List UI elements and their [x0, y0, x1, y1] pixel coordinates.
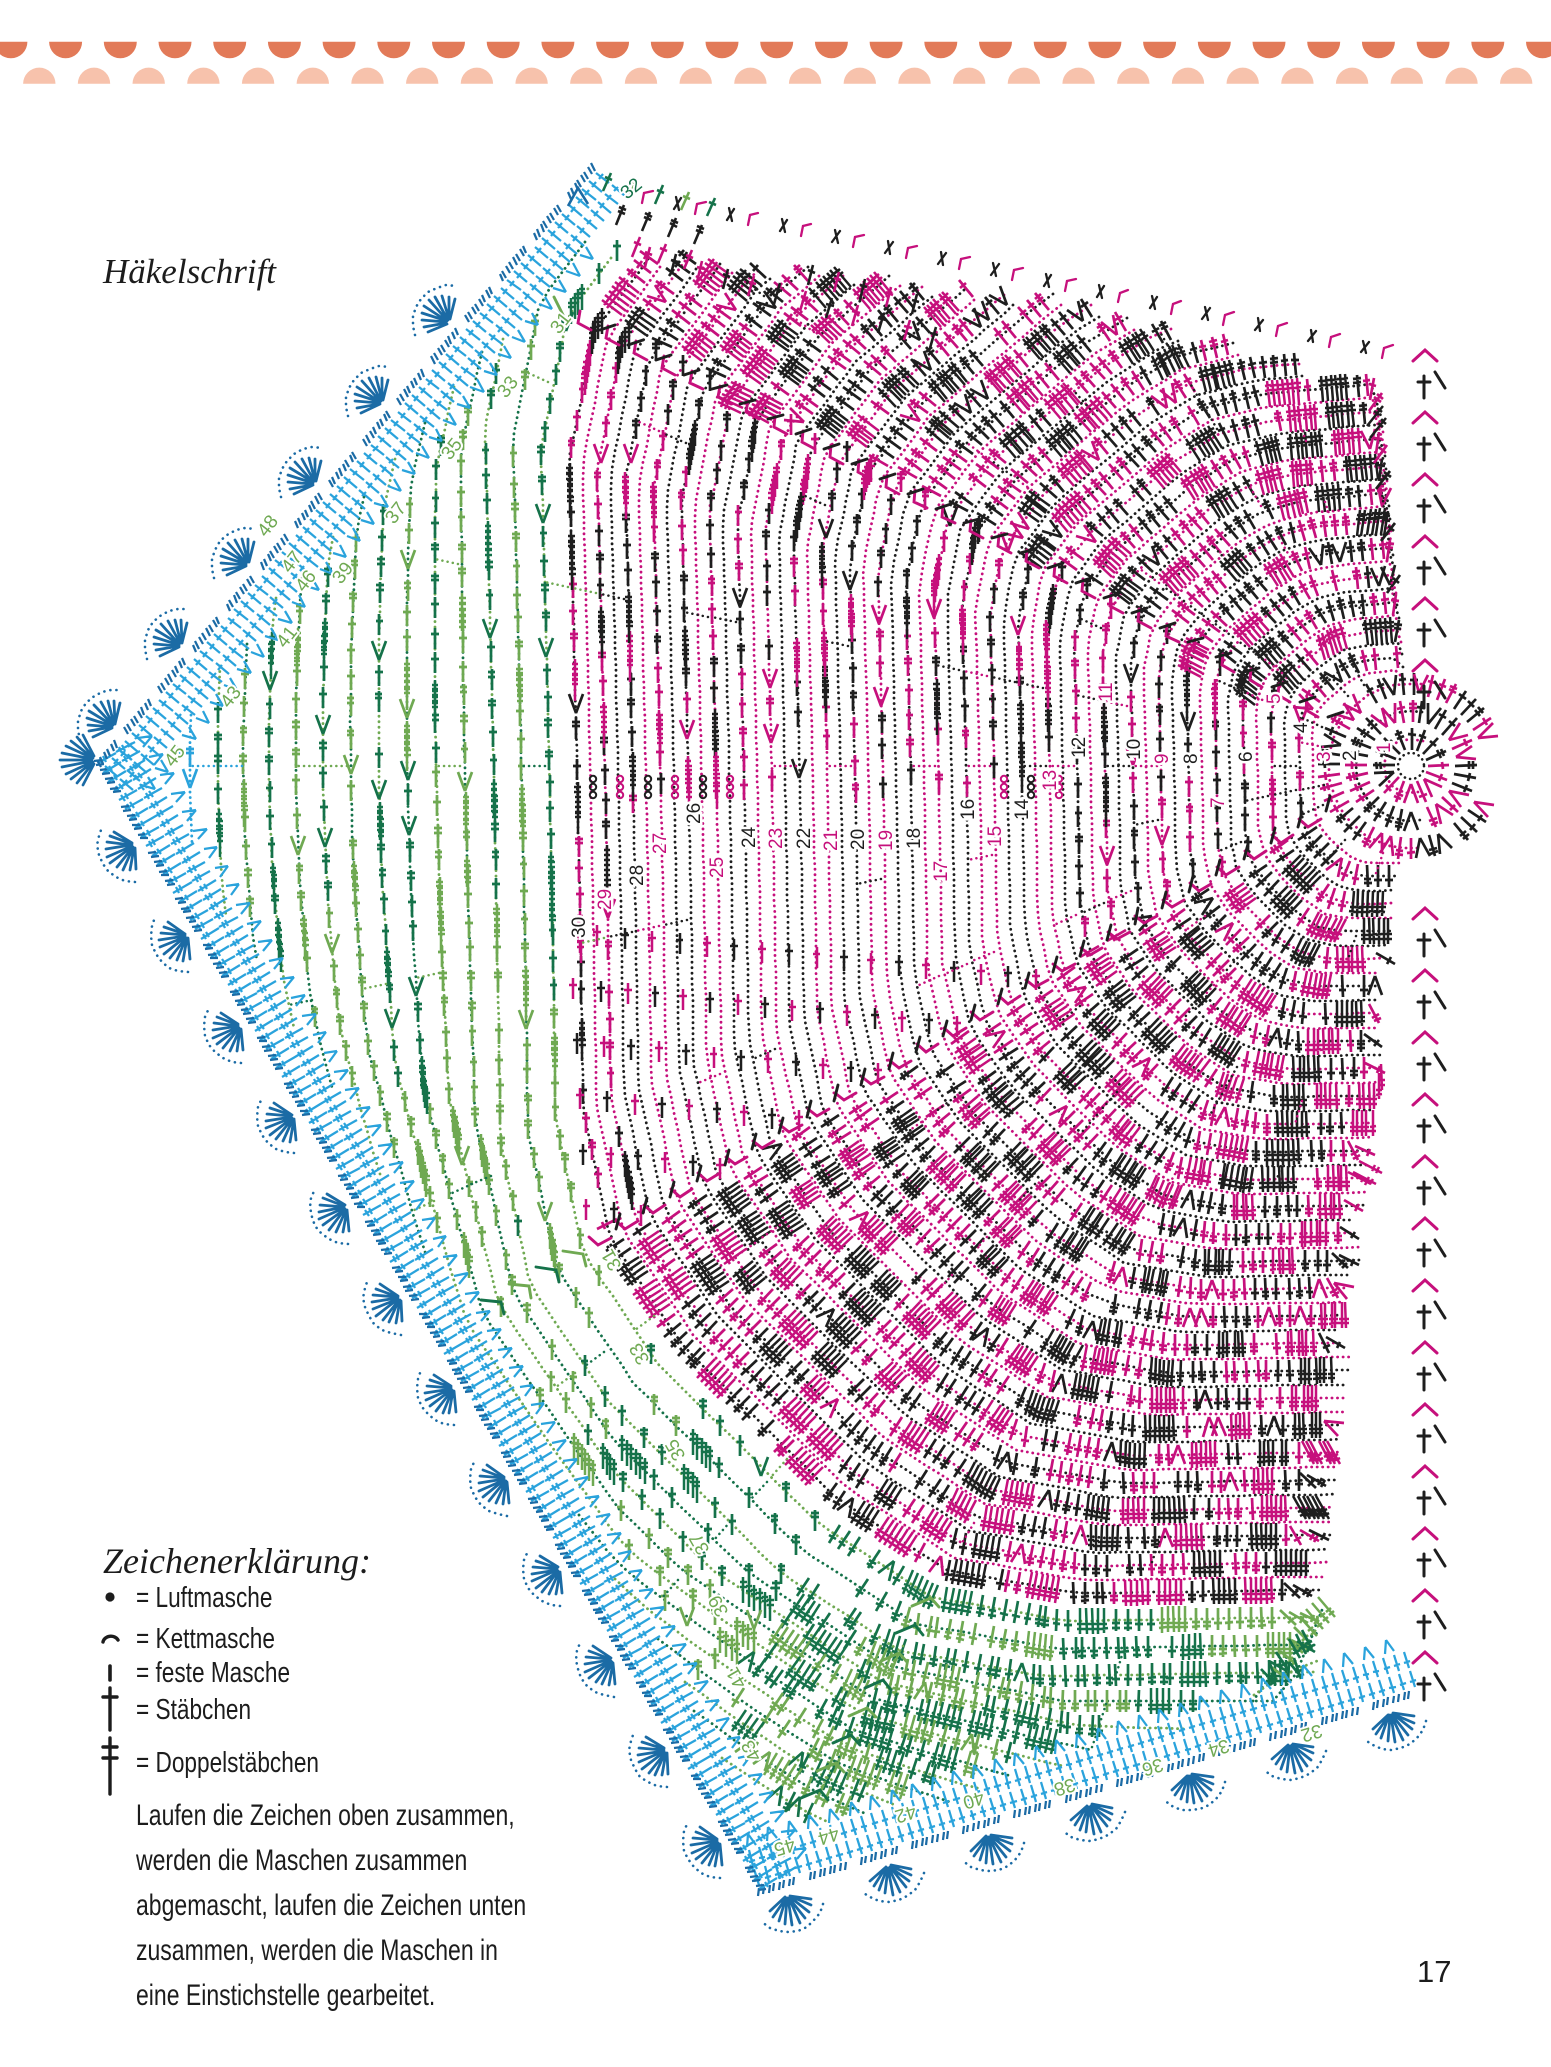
- svg-text:43: 43: [738, 1736, 767, 1765]
- svg-text:19: 19: [876, 830, 897, 851]
- svg-text:36: 36: [1139, 1753, 1165, 1779]
- svg-text:37: 37: [686, 1529, 715, 1558]
- svg-text:21: 21: [821, 830, 842, 851]
- svg-text:13: 13: [1040, 770, 1061, 791]
- svg-text:29: 29: [595, 889, 616, 910]
- svg-text:7: 7: [1208, 797, 1229, 808]
- svg-text:34: 34: [1205, 1734, 1232, 1760]
- svg-text:28: 28: [627, 865, 648, 886]
- svg-text:10: 10: [1124, 739, 1145, 760]
- svg-text:25: 25: [707, 857, 728, 878]
- svg-text:30: 30: [569, 917, 590, 938]
- svg-text:43: 43: [216, 682, 246, 712]
- svg-text:4: 4: [1291, 722, 1312, 733]
- svg-text:11: 11: [1096, 682, 1117, 702]
- svg-text:15: 15: [985, 826, 1006, 847]
- svg-text:27: 27: [650, 833, 671, 854]
- svg-text:48: 48: [253, 511, 283, 541]
- svg-text:23: 23: [766, 828, 787, 849]
- svg-text:22: 22: [794, 828, 815, 849]
- svg-text:20: 20: [848, 829, 869, 850]
- svg-text:18: 18: [904, 828, 925, 849]
- svg-text:1: 1: [1374, 742, 1395, 753]
- svg-text:14: 14: [1012, 798, 1033, 820]
- svg-text:5: 5: [1264, 693, 1285, 704]
- svg-text:16: 16: [958, 799, 979, 820]
- svg-text:24: 24: [739, 826, 760, 848]
- svg-text:17: 17: [931, 861, 952, 882]
- svg-text:2: 2: [1340, 750, 1361, 761]
- svg-text:3: 3: [1314, 751, 1335, 762]
- svg-text:26: 26: [684, 803, 705, 824]
- svg-text:9: 9: [1152, 753, 1173, 764]
- svg-text:38: 38: [1051, 1773, 1077, 1799]
- svg-text:8: 8: [1181, 753, 1202, 764]
- svg-text:6: 6: [1236, 751, 1257, 762]
- svg-text:33: 33: [493, 372, 523, 402]
- svg-text:12: 12: [1069, 737, 1090, 758]
